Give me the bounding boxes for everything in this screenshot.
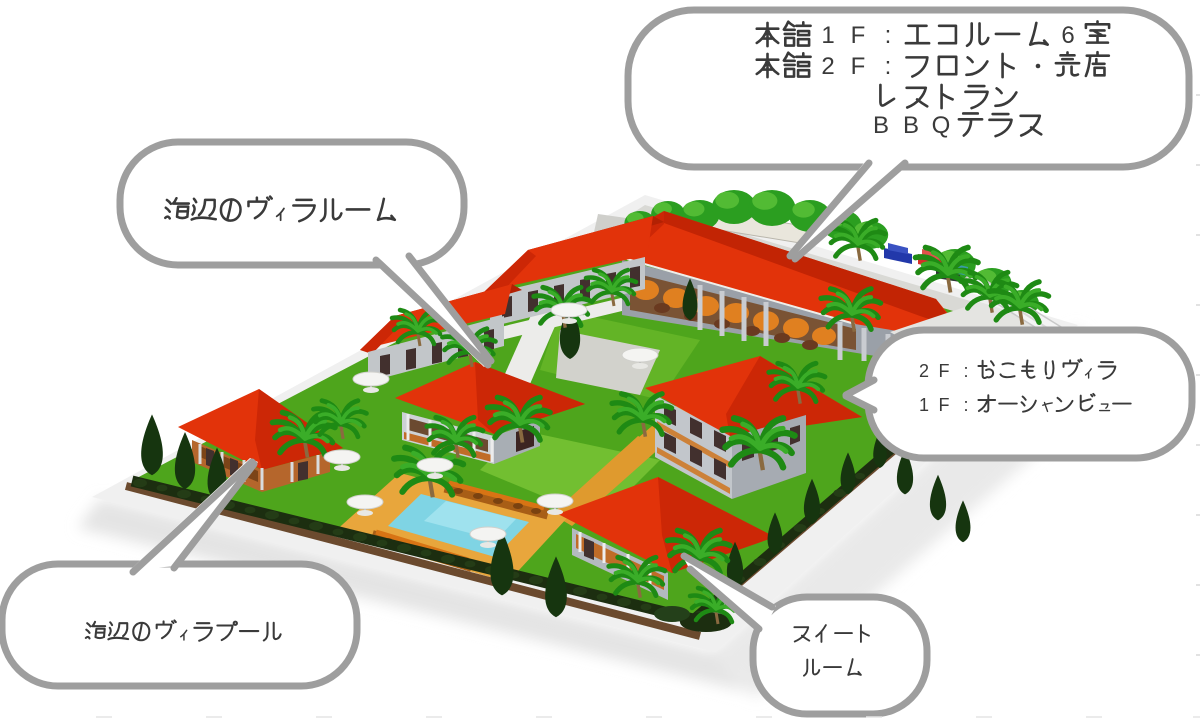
- svg-text::: :: [885, 22, 892, 49]
- svg-text:F: F: [939, 361, 950, 381]
- svg-text:2: 2: [919, 361, 929, 381]
- svg-text::: :: [963, 361, 968, 381]
- svg-text:B: B: [903, 112, 919, 139]
- svg-text:1: 1: [919, 395, 929, 415]
- svg-text:6: 6: [1061, 22, 1074, 49]
- svg-text:Q: Q: [932, 112, 951, 139]
- svg-text::: :: [885, 53, 892, 80]
- svg-text:1: 1: [821, 22, 834, 49]
- svg-text:F: F: [851, 22, 866, 49]
- svg-text:2: 2: [821, 53, 834, 80]
- svg-text:F: F: [851, 53, 866, 80]
- svg-text::: :: [963, 395, 968, 415]
- svg-text:B: B: [873, 112, 889, 139]
- svg-text:F: F: [939, 395, 950, 415]
